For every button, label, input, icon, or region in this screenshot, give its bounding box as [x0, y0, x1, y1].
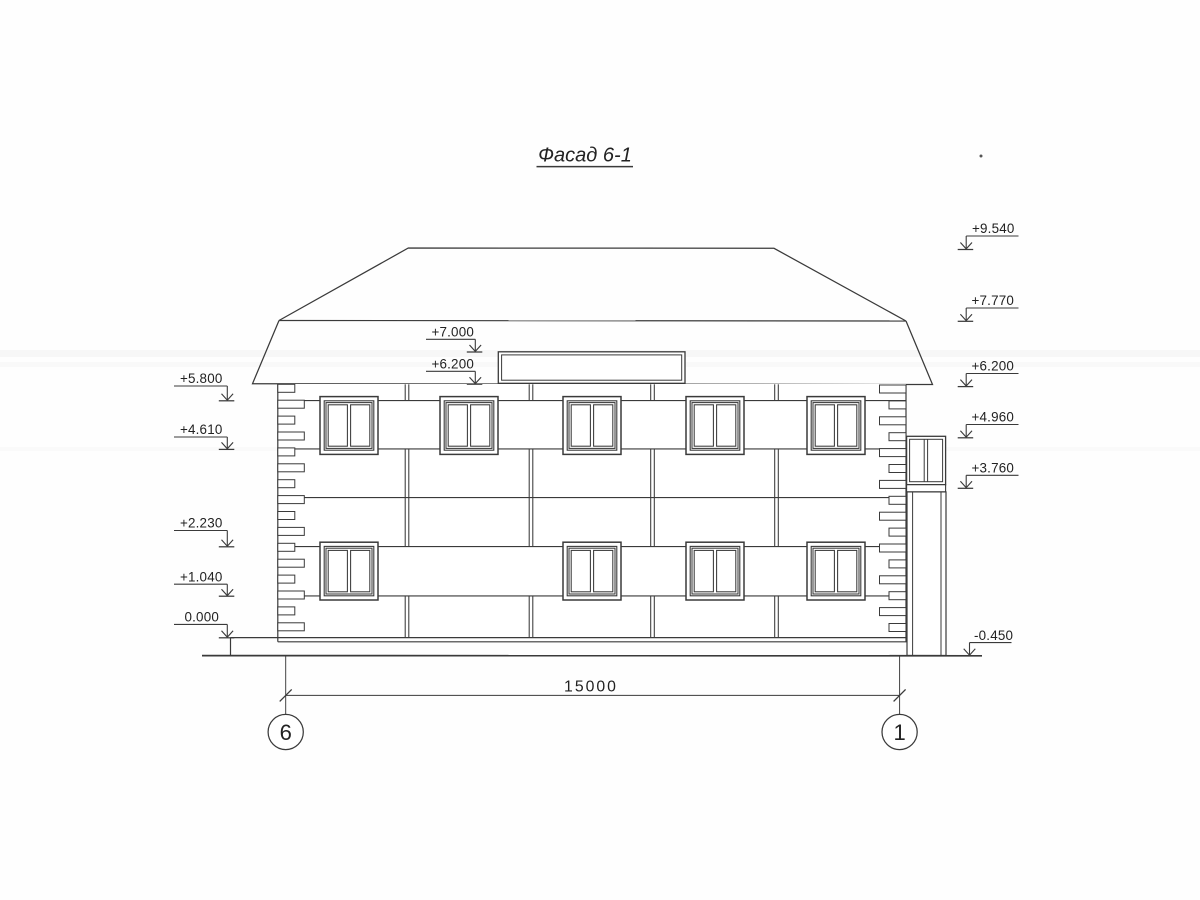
- svg-text:+6.200: +6.200: [431, 357, 474, 372]
- svg-text:0.000: 0.000: [184, 610, 219, 625]
- svg-text:-0.450: -0.450: [974, 628, 1013, 643]
- svg-text:+6.200: +6.200: [972, 359, 1015, 374]
- svg-text:15000: 15000: [564, 679, 618, 696]
- svg-text:+4.960: +4.960: [972, 410, 1015, 425]
- svg-text:+1.040: +1.040: [180, 569, 223, 584]
- svg-text:+3.760: +3.760: [972, 461, 1015, 476]
- svg-text:+9.540: +9.540: [972, 221, 1015, 236]
- svg-text:1: 1: [893, 720, 905, 745]
- svg-text:6: 6: [280, 720, 292, 745]
- svg-text:+4.610: +4.610: [180, 422, 223, 437]
- svg-text:+7.000: +7.000: [431, 325, 474, 340]
- svg-text:+2.230: +2.230: [180, 516, 223, 531]
- svg-text:+5.800: +5.800: [180, 371, 223, 386]
- svg-text:Фасад 6-1: Фасад 6-1: [538, 145, 632, 167]
- svg-text:+7.770: +7.770: [972, 293, 1015, 308]
